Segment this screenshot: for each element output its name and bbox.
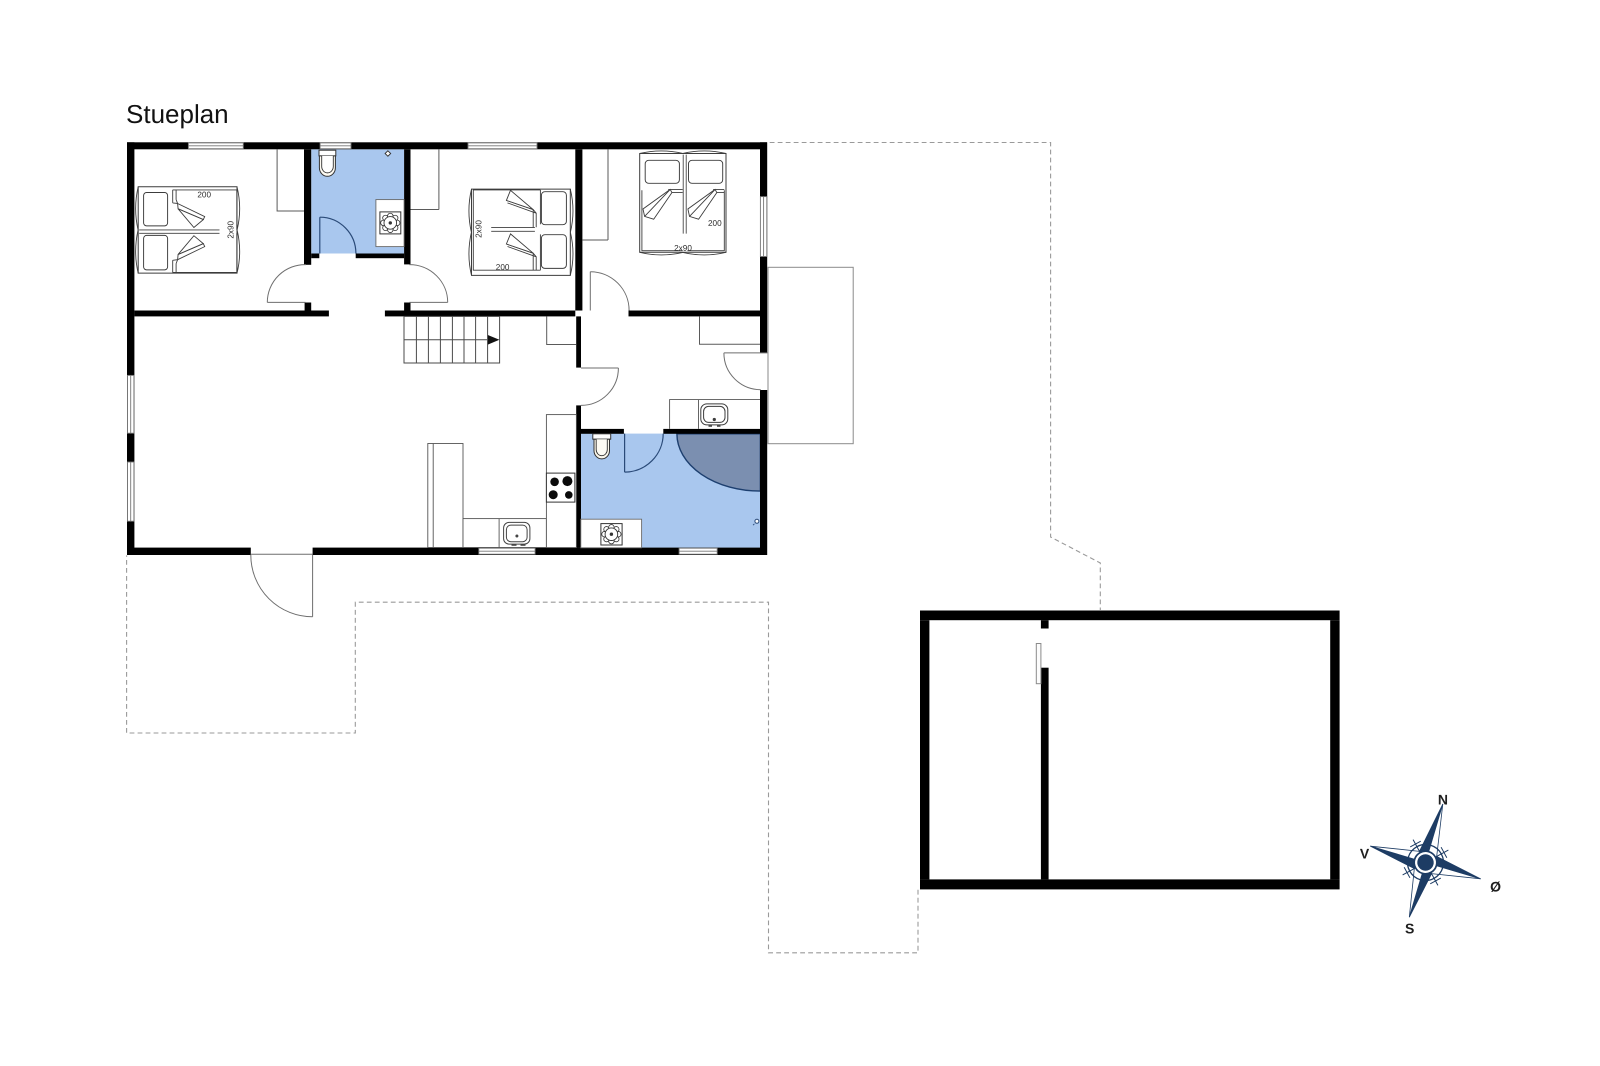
svg-text:2x90: 2x90 — [226, 220, 235, 238]
svg-text:Ø: Ø — [1490, 878, 1501, 894]
svg-text:2x90: 2x90 — [475, 220, 484, 238]
svg-text:200: 200 — [496, 263, 510, 272]
svg-text:V: V — [1360, 845, 1370, 861]
svg-text:2x90: 2x90 — [674, 244, 692, 253]
svg-text:200: 200 — [197, 190, 211, 199]
svg-text:S: S — [1405, 920, 1414, 936]
svg-text:N: N — [1438, 791, 1448, 807]
svg-text:Stueplan: Stueplan — [126, 99, 229, 129]
svg-text:200: 200 — [708, 219, 722, 228]
